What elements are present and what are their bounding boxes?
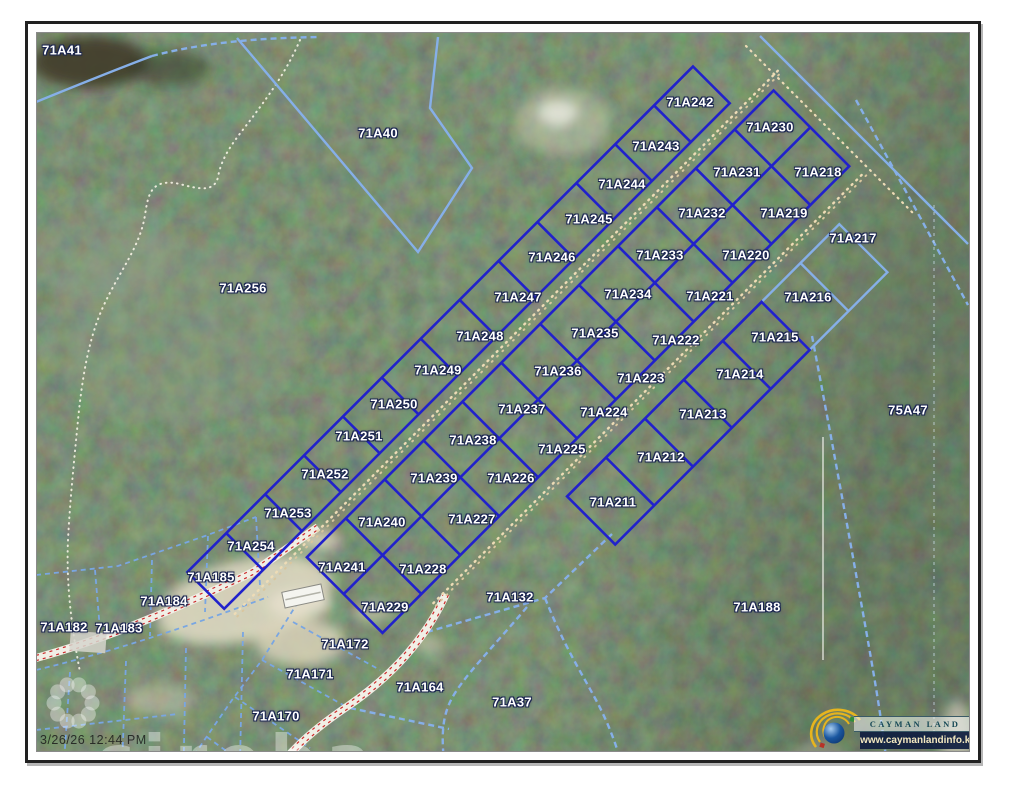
map-canvas[interactable]: 71A4171A4071A25671A24271A23071A24371A231… bbox=[37, 33, 969, 751]
aerial-imagery-and-linework bbox=[37, 33, 969, 751]
cayman-land-info-logo: CAYMAN LAND INFO www.caymanlandinfo.ky bbox=[808, 707, 970, 752]
logo-url: www.caymanlandinfo.ky bbox=[860, 732, 970, 749]
page: 71A4171A4071A25671A24271A23071A24371A231… bbox=[0, 0, 1012, 794]
map-frame: 71A4171A4071A25671A24271A23071A24371A231… bbox=[25, 21, 981, 763]
logo-title: CAYMAN LAND INFO bbox=[854, 716, 970, 732]
timestamp: 3/26/26 12:44 PM bbox=[40, 733, 147, 747]
map-viewport: 71A4171A4071A25671A24271A23071A24371A231… bbox=[36, 32, 970, 752]
aerial-photo-texture bbox=[37, 33, 969, 751]
